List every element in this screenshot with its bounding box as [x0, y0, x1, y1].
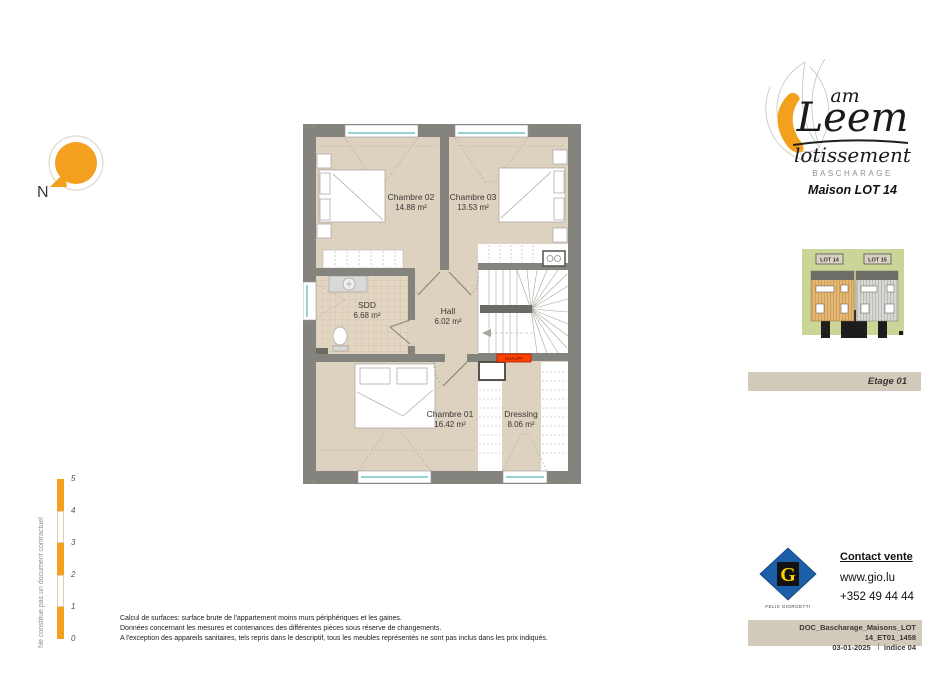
brand-block: am Leem lotissement BASCHARAGE Maison LO…	[745, 55, 925, 200]
fg-logo-name: FELIX GIORGETTI	[765, 604, 810, 609]
room-name: Hall	[441, 306, 456, 316]
contact-website[interactable]: www.gio.lu	[840, 572, 895, 584]
fg-logo-letter: G	[780, 564, 796, 586]
non-contractual-note: Ne constitue pas un document contractuel	[38, 517, 45, 648]
house-lot-neighbor	[856, 271, 898, 321]
disclaimer-line: A l'exception des appareils sanitaires, …	[120, 634, 548, 644]
lot-right-label: LOT 15	[868, 258, 887, 264]
vent-box	[543, 251, 565, 266]
room-name: SDD	[358, 300, 376, 310]
lot-left-label: LOT 14	[820, 258, 840, 264]
room-name: Chambre 03	[450, 192, 497, 202]
scale-tick: 0	[71, 634, 75, 643]
room-area: 6.02 m²	[434, 317, 461, 326]
room-name: Chambre 01	[427, 409, 474, 419]
scale-segment	[57, 511, 64, 543]
boiler-box	[479, 362, 505, 380]
scale-tick: 2	[71, 570, 75, 579]
room-name: Dressing	[504, 409, 538, 419]
room-area: 16.42 m²	[434, 420, 466, 429]
site-plan-thumbnail: LOT 14 LOT 15	[799, 246, 907, 338]
logo-city: BASCHARAGE	[790, 169, 915, 178]
scale-segment	[57, 543, 64, 575]
contact-phone: +352 49 44 44	[840, 591, 914, 603]
disclaimer-line: Calcul de surfaces: surface brute de l'a…	[120, 614, 548, 624]
scale-tick: 1	[71, 602, 75, 611]
floor-plan: CHAUFF Chambre 02 14.88 m² Chambre 03 13…	[303, 124, 581, 484]
north-label: N	[37, 184, 49, 202]
logo-lotissement: lotissement	[790, 143, 915, 167]
doc-reference: DOC_Bascharage_Maisons_LOT 14_ET01_1458	[748, 623, 916, 643]
disclaimer-line: Données concernant les mesures et conten…	[120, 624, 548, 634]
doc-indice: indice 04	[884, 643, 916, 652]
room-area: 13.53 m²	[457, 203, 489, 212]
felix-giorgetti-logo: G FELIX GIORGETTI	[757, 547, 819, 611]
doc-date: 03-01-2025	[832, 643, 870, 652]
scale-tick: 3	[71, 538, 75, 547]
house-lot14	[811, 271, 854, 321]
contact-heading: Contact vente	[840, 551, 913, 563]
room-area: 14.88 m²	[395, 203, 427, 212]
svg-text:CHAUFF: CHAUFF	[505, 356, 523, 361]
scale-tick: 5	[71, 474, 75, 483]
scale-bar	[57, 479, 64, 639]
scale-segment	[57, 607, 64, 639]
room-name: Chambre 02	[388, 192, 435, 202]
room-area: 8.06 m²	[507, 420, 534, 429]
scale-segment	[57, 479, 64, 511]
doc-divider	[878, 643, 879, 650]
scale-tick: 4	[71, 506, 75, 515]
disclaimer-block: Calcul de surfaces: surface brute de l'a…	[120, 614, 548, 644]
chauff-label: CHAUFF	[497, 354, 531, 362]
room-area: 6.68 m²	[353, 311, 380, 320]
floorplan-sheet: N Ne constitue pas un document contractu…	[0, 0, 933, 700]
doc-reference-bar: DOC_Bascharage_Maisons_LOT 14_ET01_1458 …	[748, 620, 922, 646]
sheet-title: Maison LOT 14	[780, 183, 925, 197]
scale-segment	[57, 575, 64, 607]
etage-bar: Etage 01	[748, 372, 921, 391]
